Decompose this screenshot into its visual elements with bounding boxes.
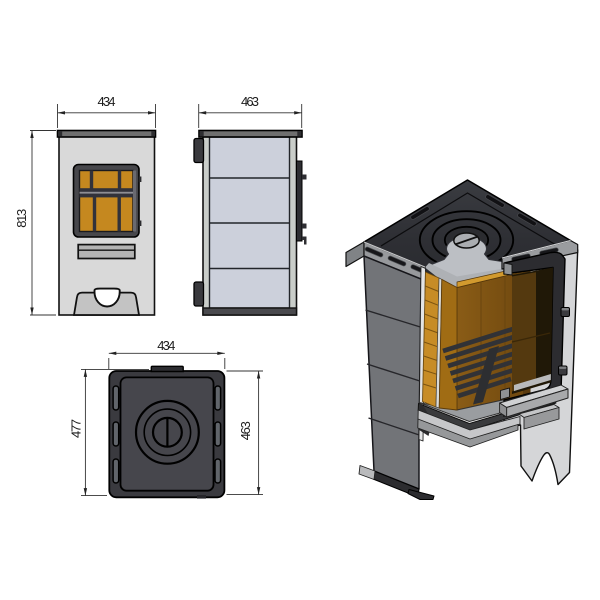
svg-text:463: 463 [241, 94, 259, 109]
svg-text:434: 434 [157, 338, 175, 353]
svg-text:477: 477 [68, 419, 83, 438]
svg-text:463: 463 [238, 421, 253, 440]
svg-text:434: 434 [98, 94, 116, 109]
svg-text:813: 813 [14, 209, 29, 228]
